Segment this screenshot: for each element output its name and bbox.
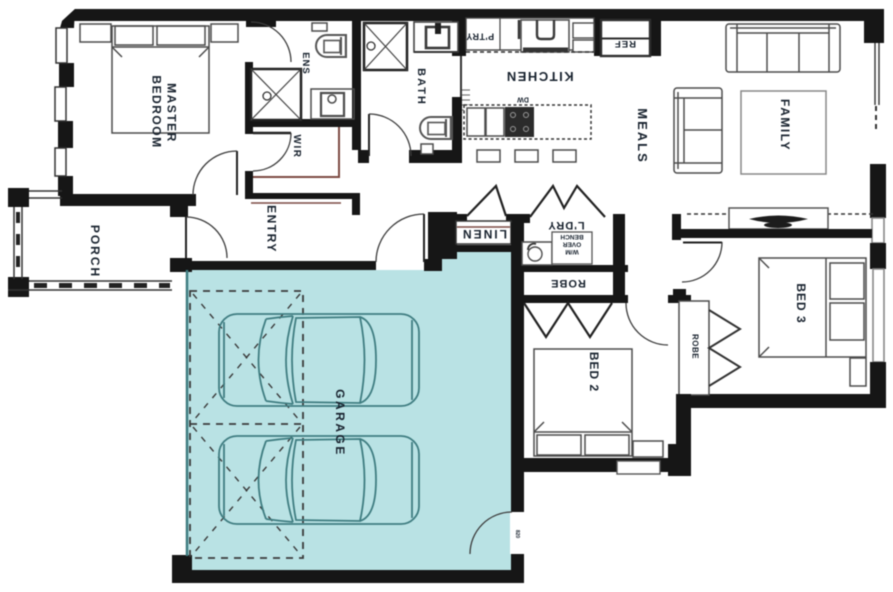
svg-text:ROBE: ROBE <box>691 334 700 359</box>
svg-text:P'TRY: P'TRY <box>466 32 494 42</box>
svg-text:KITCHEN: KITCHEN <box>505 69 573 84</box>
svg-text:BENCH: BENCH <box>560 233 583 240</box>
svg-text:L'DRY: L'DRY <box>547 219 584 231</box>
svg-text:820: 820 <box>514 530 520 539</box>
svg-text:OVER: OVER <box>562 241 581 248</box>
svg-text:FAMILY: FAMILY <box>778 99 792 151</box>
svg-text:BEDROOM: BEDROOM <box>150 75 164 148</box>
svg-text:PORCH: PORCH <box>88 225 102 278</box>
svg-text:BATH: BATH <box>415 68 427 106</box>
svg-text:MEALS: MEALS <box>635 108 650 164</box>
svg-text:BED 2: BED 2 <box>587 352 601 392</box>
svg-text:LINEN: LINEN <box>461 227 507 241</box>
svg-text:WIR: WIR <box>291 135 302 159</box>
svg-text:ENS: ENS <box>300 52 311 75</box>
svg-text:W/M: W/M <box>565 248 578 255</box>
svg-text:ROBE: ROBE <box>550 277 586 289</box>
svg-text:ENTRY: ENTRY <box>265 205 279 253</box>
svg-text:GARAGE: GARAGE <box>333 389 347 457</box>
svg-text:BED 3: BED 3 <box>794 283 808 323</box>
svg-text:REF: REF <box>614 38 636 49</box>
svg-text:DW: DW <box>517 96 529 103</box>
svg-text:MASTER: MASTER <box>165 83 179 143</box>
